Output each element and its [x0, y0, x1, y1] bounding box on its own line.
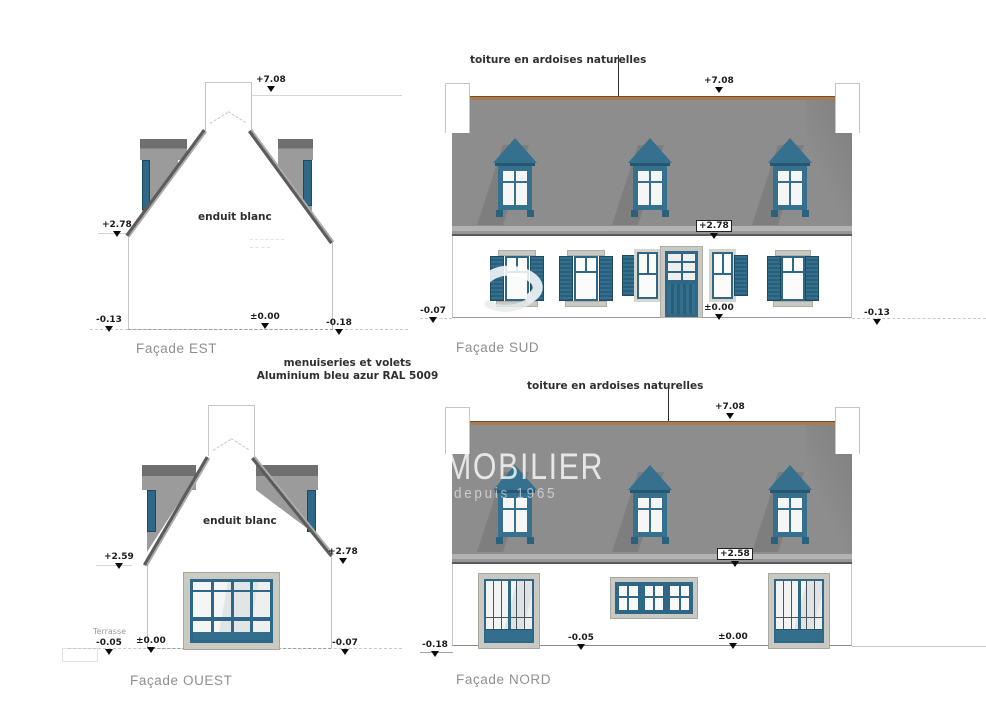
facade-sud: toiture en ardoises naturelles +7.08 — [420, 40, 986, 370]
door-glazing — [668, 254, 695, 280]
level-arrow-icon — [715, 314, 723, 320]
level-marker-ridge: +7.08 — [704, 76, 734, 93]
dormer-profile-front — [147, 490, 156, 532]
level-marker-terrace: -0.05 — [568, 633, 594, 650]
glazed-bay-window — [183, 572, 280, 650]
dormer-window — [768, 465, 812, 544]
level-marker-ground: -0.18 — [422, 640, 448, 657]
level-arrow-icon — [267, 86, 275, 92]
eave-band — [452, 226, 852, 236]
shutter — [767, 256, 781, 301]
level-arrow-icon — [729, 643, 737, 649]
chimney — [445, 83, 470, 133]
level-marker-eave: +2.78 — [696, 220, 732, 239]
roof-material-note: toiture en ardoises naturelles — [470, 54, 646, 66]
chimney — [835, 83, 860, 133]
level-arrow-icon — [105, 326, 113, 332]
elevation-drawing-sheet: +7.08 +2.78 enduit blanc -0.13 ±0.00 -0.… — [0, 0, 986, 719]
dormer-pediment — [768, 465, 812, 490]
dormer-sash — [773, 493, 807, 537]
level-arrow-icon — [873, 319, 881, 325]
level-marker-ground: -0.07 — [332, 638, 358, 655]
dormer-window — [628, 465, 672, 544]
dormer-window — [493, 138, 537, 217]
joinery-note: menuiseries et volets Aluminium bleu azu… — [250, 357, 445, 383]
shutter — [599, 256, 613, 301]
chimney — [835, 407, 860, 454]
ridge-reference-line — [250, 95, 402, 96]
triple-window — [610, 577, 698, 619]
dormer-pediment — [628, 465, 672, 490]
dormer-pediment — [493, 138, 537, 163]
level-marker-eave: +2.59 — [104, 552, 134, 569]
level-arrow-icon — [105, 649, 113, 655]
level-marker-ground: -0.13 — [864, 308, 890, 325]
wall-material-note: enduit blanc — [198, 211, 272, 223]
level-marker-eave: +2.78 — [328, 547, 358, 564]
dormer-profile-front — [303, 160, 312, 206]
level-marker-ground: -0.13 — [96, 315, 122, 332]
watermark-subtext: depuis 1965 — [454, 485, 557, 502]
ground-line — [852, 646, 986, 647]
level-arrow-icon — [261, 323, 269, 329]
dormer-profile-cap — [278, 139, 313, 160]
level-marker-eave: +2.58 — [717, 548, 753, 567]
facade-title: Façade EST — [136, 341, 217, 356]
level-arrow-icon — [429, 317, 437, 323]
entry-door — [660, 246, 703, 318]
facade-ouest: +2.59 +2.78 enduit blanc Terrasse -0.05 — [60, 390, 410, 700]
shutter — [734, 255, 748, 296]
chimney — [208, 405, 255, 456]
dormer-sash — [633, 493, 667, 537]
level-marker-ground: -0.18 — [326, 318, 352, 335]
level-arrow-icon — [431, 651, 439, 657]
level-arrow-icon — [710, 233, 718, 239]
level-arrow-icon — [115, 563, 123, 569]
french-door — [768, 573, 830, 649]
level-arrow-icon — [715, 87, 723, 93]
window-sash — [637, 252, 658, 299]
level-marker-ground: ±0.00 — [250, 312, 280, 329]
dormer-profile-cap — [140, 139, 187, 160]
shutter — [805, 256, 819, 301]
level-marker-ground: ±0.00 — [136, 636, 166, 653]
wall-edge — [128, 233, 129, 329]
small-shuttered-window — [712, 252, 748, 299]
door-panel — [668, 284, 695, 314]
facade-title: Façade OUEST — [130, 673, 232, 688]
level-arrow-icon — [113, 231, 121, 237]
dormer-sash — [773, 166, 807, 210]
dormer-pediment — [628, 138, 672, 163]
level-arrow-icon — [335, 329, 343, 335]
level-marker-ridge: +7.08 — [256, 75, 286, 92]
level-marker-ground: -0.07 — [420, 306, 446, 323]
chimney — [205, 82, 252, 134]
terrace-label: Terrasse — [93, 627, 126, 636]
level-arrow-icon — [577, 644, 585, 650]
window-sash — [781, 256, 805, 301]
level-marker-ground: ±0.00 — [718, 632, 748, 649]
dormer-sash — [498, 166, 532, 210]
small-shuttered-window — [622, 252, 658, 299]
level-arrow-icon — [147, 647, 155, 653]
roof-material-note: toiture en ardoises naturelles — [527, 380, 703, 392]
shuttered-window — [765, 250, 821, 307]
level-arrow-icon — [339, 558, 347, 564]
wall-edge — [332, 240, 333, 329]
watermark-text: MOBILIER — [446, 446, 604, 488]
level-marker-terrace: -0.05 — [96, 638, 122, 655]
roof-ridge — [452, 421, 852, 425]
dormer-pediment — [768, 138, 812, 163]
shutter — [622, 255, 636, 296]
terrace-step — [62, 648, 98, 662]
french-door — [478, 573, 540, 649]
dormer-window — [628, 138, 672, 217]
facade-title: Façade SUD — [456, 340, 539, 355]
shuttered-window — [557, 250, 615, 307]
level-arrow-icon — [726, 413, 734, 419]
window-sash — [712, 252, 733, 299]
level-arrow-icon — [731, 561, 739, 567]
level-marker-ground: ±0.00 — [704, 303, 734, 320]
shutter — [559, 256, 573, 301]
facade-title: Façade NORD — [456, 672, 551, 687]
window-sash — [574, 256, 598, 301]
roof-ridge — [452, 96, 852, 100]
level-arrow-icon — [341, 649, 349, 655]
dormer-sash — [633, 166, 667, 210]
watermark-swoosh — [468, 252, 554, 316]
level-marker-ridge: +7.08 — [715, 402, 745, 419]
facade-nord: toiture en ardoises naturelles +7.08 MOB… — [420, 370, 986, 710]
facade-est: +7.08 +2.78 enduit blanc -0.13 ±0.00 -0.… — [60, 60, 410, 370]
dormer-window — [768, 138, 812, 217]
eave-band — [452, 554, 852, 564]
wall-edge — [331, 553, 332, 648]
level-marker-eave: +2.78 — [102, 220, 132, 237]
wall-material-note: enduit blanc — [203, 515, 277, 527]
